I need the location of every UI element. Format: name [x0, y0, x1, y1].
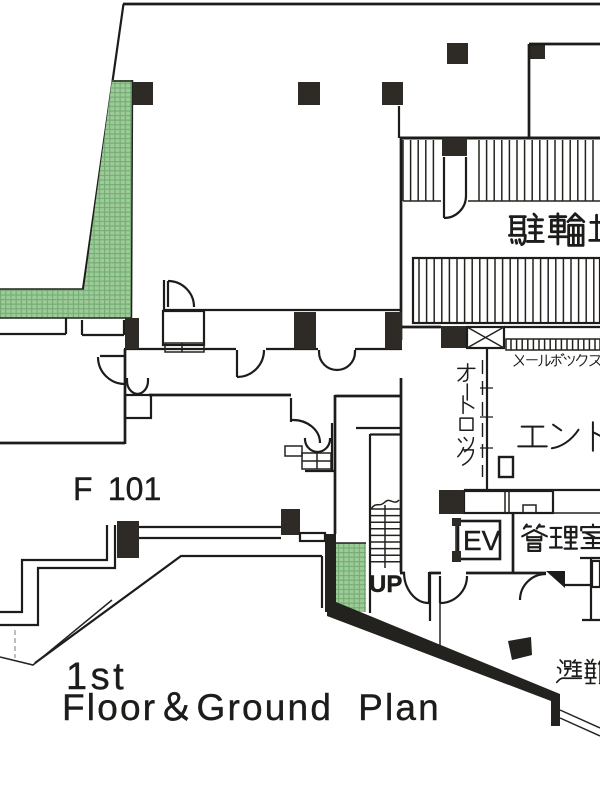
svg-text:UP: UP: [369, 571, 402, 598]
svg-text:EV: EV: [463, 525, 501, 556]
svg-text:Floor＆Ground Plan: Floor＆Ground Plan: [62, 687, 441, 728]
svg-text:F 101: F 101: [73, 471, 161, 507]
